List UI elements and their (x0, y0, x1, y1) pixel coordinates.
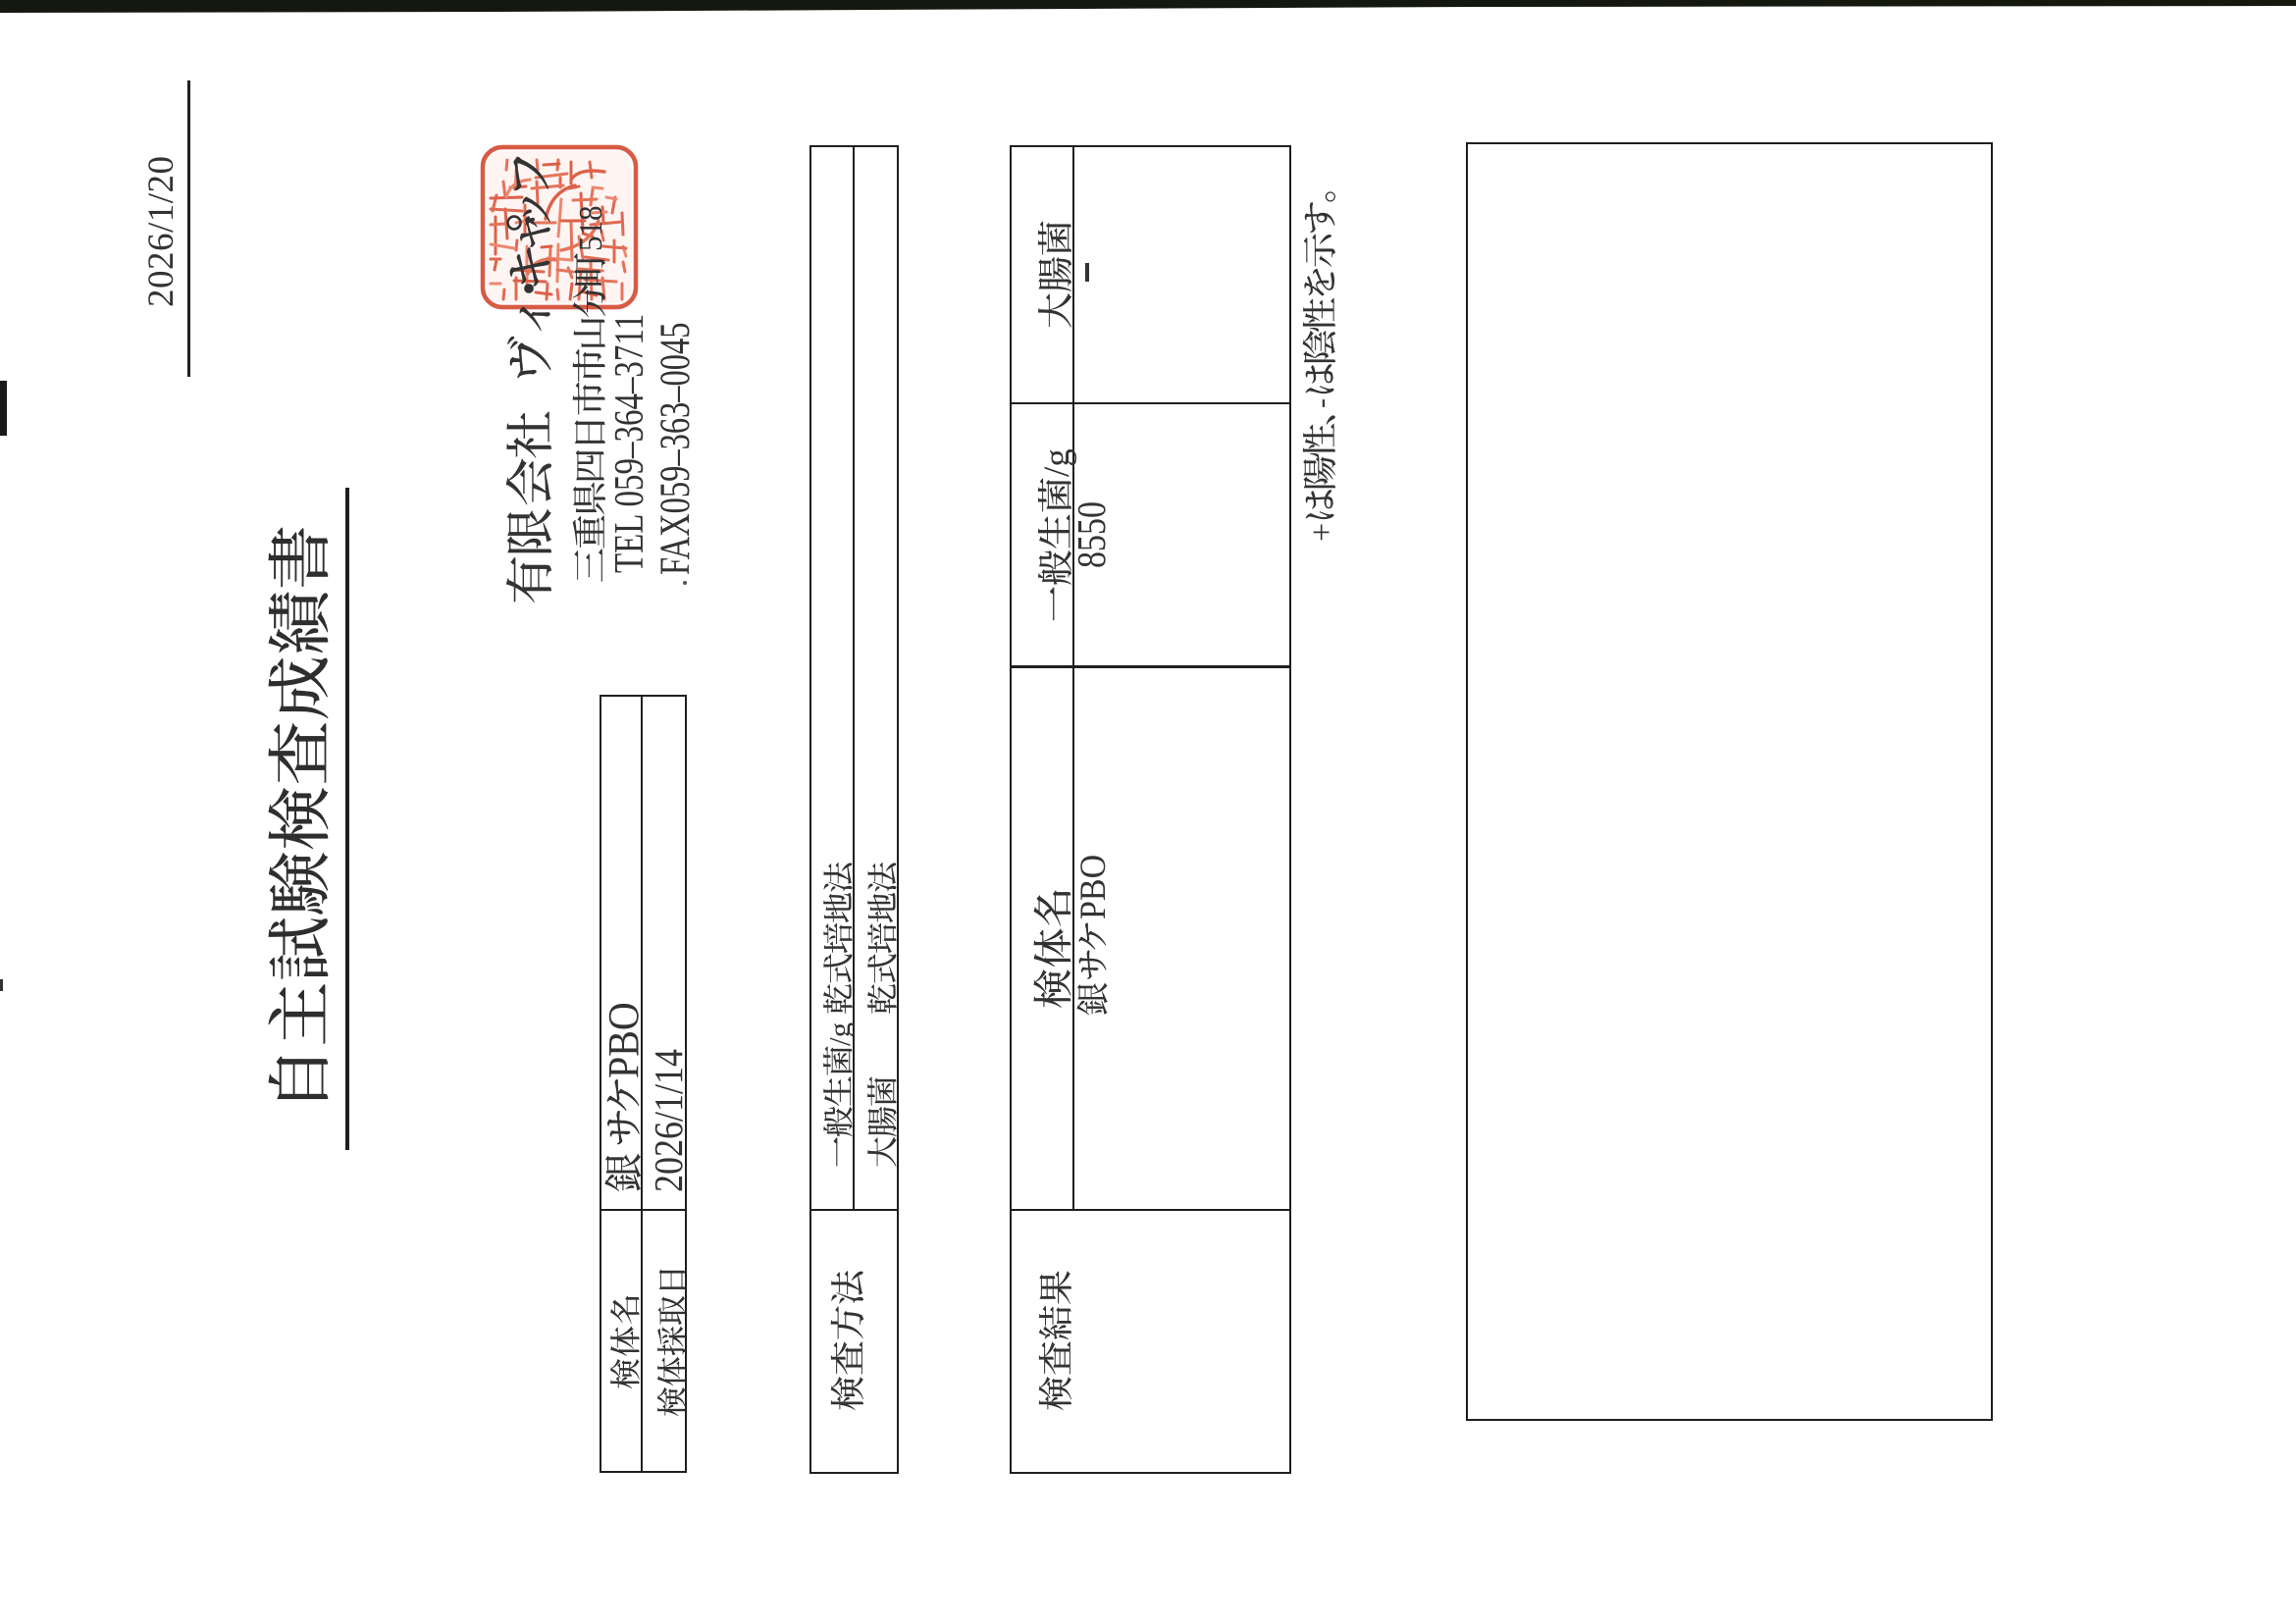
svg-text:8550: 8550 (1074, 501, 1114, 568)
svg-text:518: 518 (573, 206, 610, 251)
svg-text:PBO: PBO (600, 1002, 643, 1078)
svg-text:TEL 059–364–3711: TEL 059–364–3711 (606, 314, 650, 573)
svg-text:2026/1/14: 2026/1/14 (647, 1049, 689, 1192)
svg-text:PBO: PBO (1074, 855, 1113, 919)
svg-text:FAX059–363–0045: FAX059–363–0045 (652, 322, 697, 575)
svg-text:/g: /g (822, 1022, 854, 1046)
svg-text:+: + (1304, 523, 1340, 542)
svg-text:/g: /g (1037, 448, 1077, 477)
svg-text:-: - (1305, 398, 1337, 408)
